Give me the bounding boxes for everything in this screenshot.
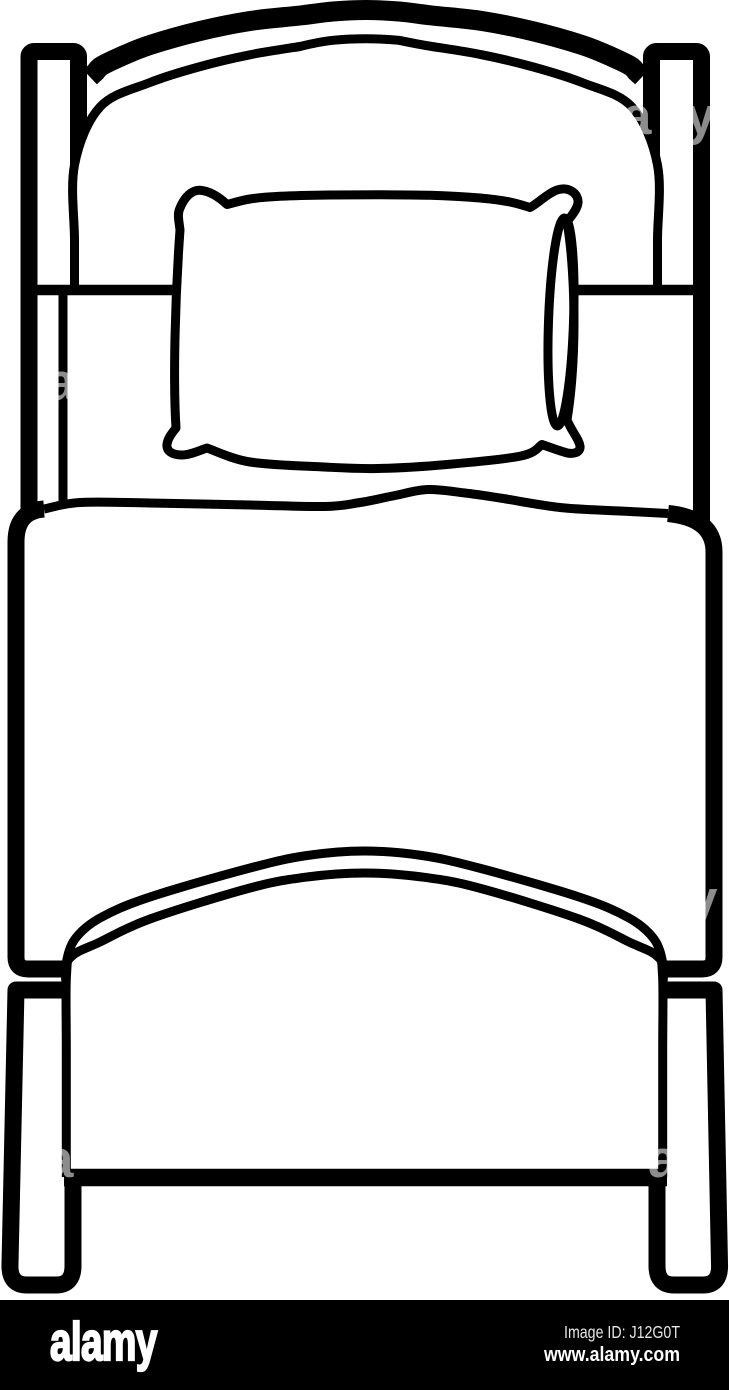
svg-text:Image ID: J12G0T: Image ID: J12G0T <box>564 1322 680 1342</box>
svg-text:a: a <box>622 87 652 146</box>
svg-text:y: y <box>688 870 718 929</box>
svg-text:alamy: alamy <box>50 1311 157 1372</box>
svg-text:www.alamy.com: www.alamy.com <box>543 1344 680 1366</box>
svg-text:y: y <box>686 87 716 146</box>
svg-text:a: a <box>648 1130 678 1189</box>
svg-text:a: a <box>46 353 76 412</box>
svg-text:a: a <box>630 870 660 929</box>
svg-text:a: a <box>44 1130 74 1189</box>
